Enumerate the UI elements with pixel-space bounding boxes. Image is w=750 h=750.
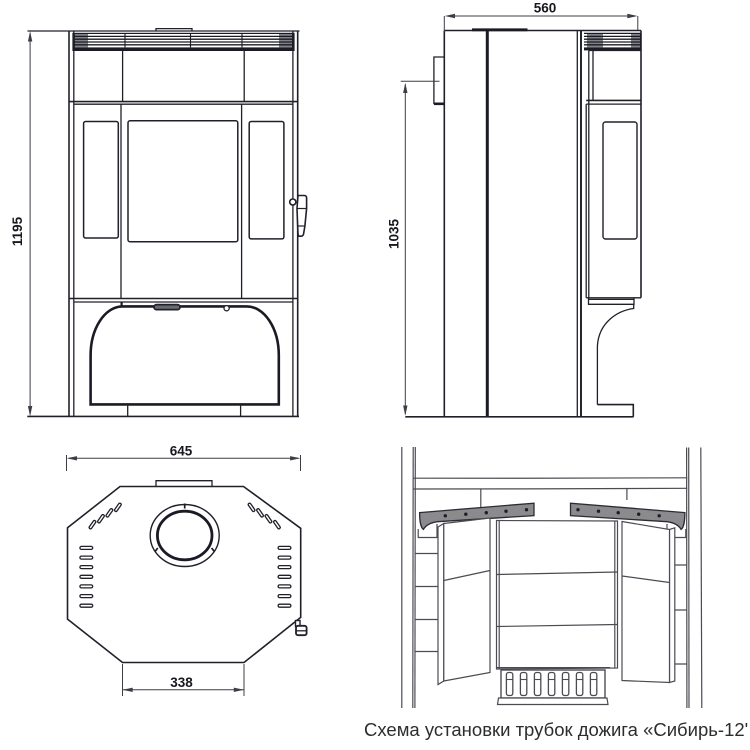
svg-text:1035: 1035: [387, 218, 402, 249]
svg-text:560: 560: [534, 1, 557, 16]
svg-text:338: 338: [170, 675, 193, 690]
svg-text:645: 645: [170, 444, 193, 459]
svg-text:1195: 1195: [10, 216, 25, 246]
svg-text:Схема установки трубок дожига: Схема установки трубок дожига «Сибирь-12…: [364, 719, 748, 740]
